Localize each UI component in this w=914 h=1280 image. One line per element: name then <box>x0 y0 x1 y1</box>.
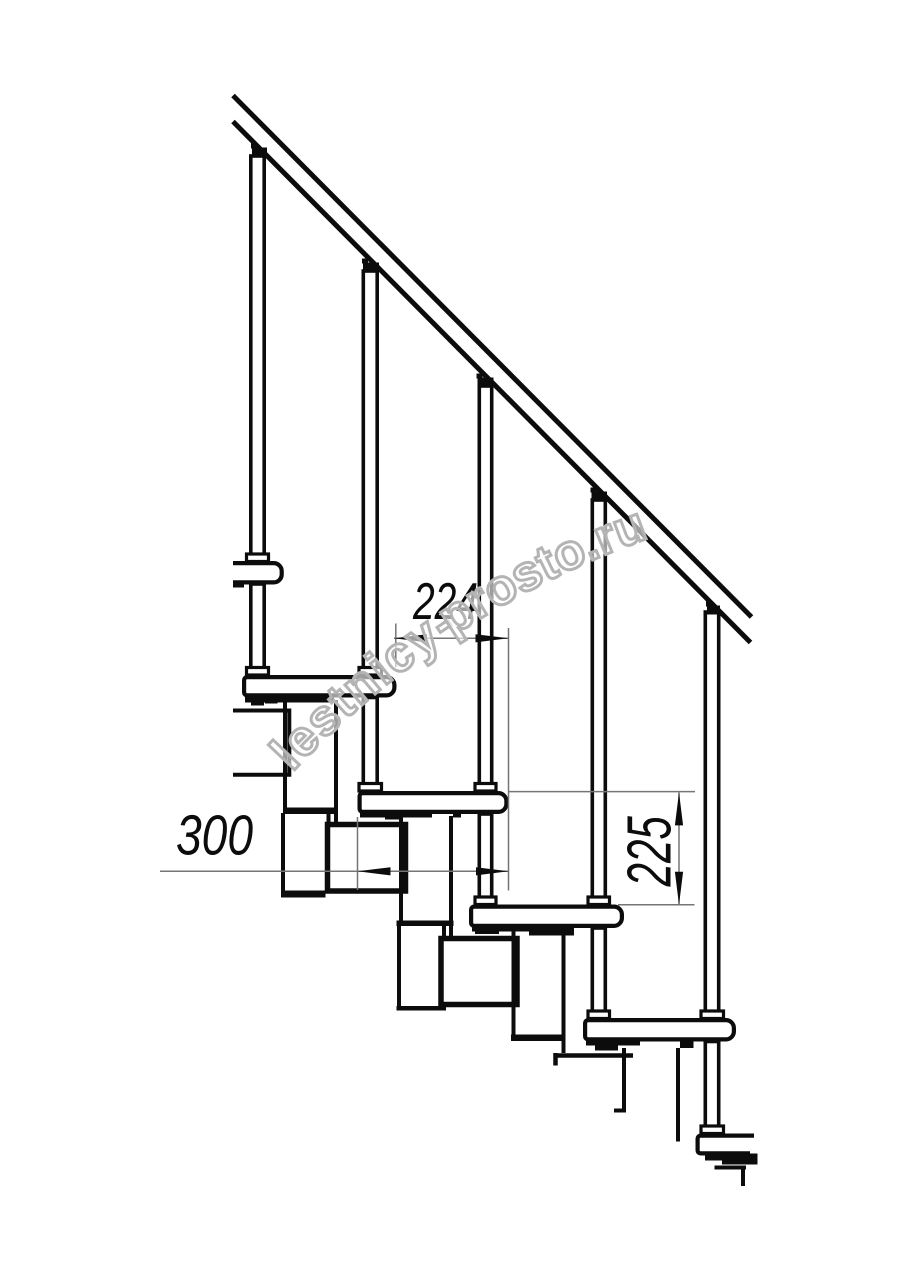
svg-text:300: 300 <box>176 803 253 867</box>
svg-text:225: 225 <box>616 816 685 888</box>
